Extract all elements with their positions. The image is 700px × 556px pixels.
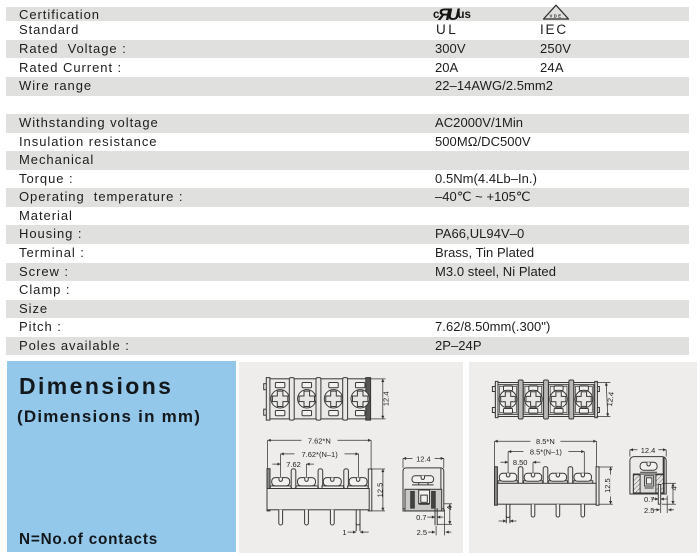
svg-text:2.5: 2.5 [644,505,654,514]
svg-text:7.62: 7.62 [286,460,301,469]
svg-text:0.7: 0.7 [644,495,654,504]
svg-text:8.5*(N–1): 8.5*(N–1) [529,447,562,456]
svg-text:4: 4 [445,505,454,509]
svg-text:VDE: VDE [549,14,562,19]
svg-text:2.5: 2.5 [416,528,426,537]
svg-text:12.4: 12.4 [416,454,431,463]
svg-text:8.5*N: 8.5*N [536,437,555,446]
svg-text:7.62*(N–1): 7.62*(N–1) [301,449,338,458]
svg-text:8.50: 8.50 [513,458,528,467]
svg-text:12.4: 12.4 [605,391,616,407]
svg-text:12.5: 12.5 [375,482,384,497]
svg-text:7.62*N: 7.62*N [307,436,330,445]
svg-text:12.4: 12.4 [381,391,390,406]
svg-text:0.7: 0.7 [416,513,426,522]
svg-text:12.5: 12.5 [603,478,612,493]
svg-text:1: 1 [342,527,346,536]
svg-text:4: 4 [669,486,678,490]
svg-text:12.4: 12.4 [640,445,655,454]
